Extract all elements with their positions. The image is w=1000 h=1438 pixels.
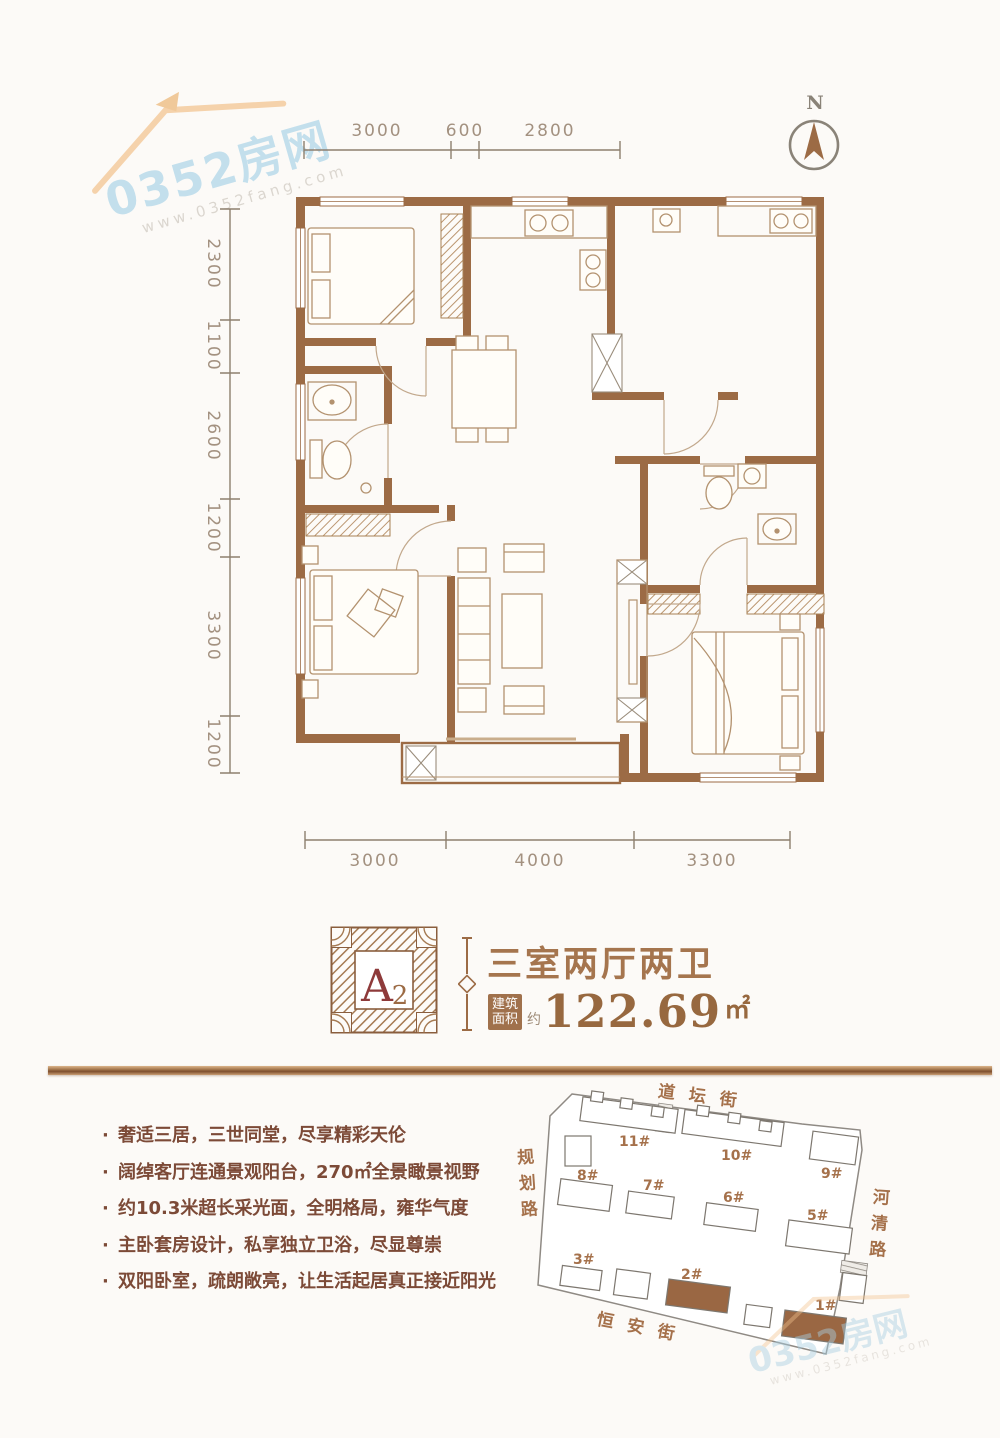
site-plan: 11# 10# 9# 8# 7# 6# 5# 3# 2# 1# xyxy=(515,1076,895,1368)
area-label-line1: 建筑 xyxy=(492,997,518,1012)
unit-badge: A 2 xyxy=(330,926,438,1034)
area-label-line2: 面积 xyxy=(492,1012,518,1027)
master-bath-fixtures xyxy=(704,464,796,544)
dimension-bottom: 3000 4000 3300 xyxy=(300,826,800,876)
floor-plan-drawing xyxy=(280,188,825,802)
living-room-set xyxy=(458,544,544,714)
bedroom2-bed xyxy=(302,546,418,698)
selling-point: 双阳卧室，疏朗敞亮，让生活起居真正接近阳光 xyxy=(100,1264,520,1301)
svg-text:4000: 4000 xyxy=(514,851,565,871)
svg-text:3300: 3300 xyxy=(686,851,737,871)
svg-text:3300: 3300 xyxy=(203,610,223,661)
copper-divider xyxy=(48,1066,992,1075)
bedroom1-bed xyxy=(308,228,414,324)
svg-text:1100: 1100 xyxy=(203,320,223,371)
svg-text:2600: 2600 xyxy=(203,410,223,461)
dining-set xyxy=(452,336,516,442)
furniture xyxy=(302,206,816,770)
svg-text:2300: 2300 xyxy=(203,238,223,289)
svg-text:8#: 8# xyxy=(577,1168,598,1184)
selling-point: 奢适三居，三世同堂，尽享精彩天伦 xyxy=(100,1118,520,1155)
svg-text:9#: 9# xyxy=(821,1166,842,1182)
selling-point: 约10.3米超长采光面，全明格局，雍华气度 xyxy=(100,1191,520,1228)
selling-point: 主卧套房设计，私享独立卫浴，尽显尊崇 xyxy=(100,1228,520,1265)
unit-title: 三室两厅两卫 xyxy=(487,936,715,987)
north-label: N xyxy=(780,92,850,114)
svg-text:3000: 3000 xyxy=(349,851,400,871)
svg-text:5#: 5# xyxy=(807,1208,828,1224)
badge-number: 2 xyxy=(392,981,409,1011)
svg-text:10#: 10# xyxy=(721,1148,752,1164)
dimension-top: 3000 600 2800 xyxy=(298,118,628,162)
selling-points-list: 奢适三居，三世同堂，尽享精彩天伦 阔绰客厅连通景观阳台，270㎡全景瞰景视野 约… xyxy=(100,1118,520,1301)
svg-text:7#: 7# xyxy=(643,1178,664,1194)
north-compass: N xyxy=(780,92,850,182)
area-label-chip: 建筑 面积 xyxy=(488,994,522,1030)
kitchen-fixtures xyxy=(471,206,607,290)
svg-text:1#: 1# xyxy=(815,1298,836,1314)
dimension-left: 2300 1100 2600 1200 3300 1200 xyxy=(192,203,242,783)
area-unit: ㎡ xyxy=(724,989,750,1026)
area-approx: 约 xyxy=(527,1009,541,1029)
svg-text:3#: 3# xyxy=(573,1252,594,1268)
title-connector xyxy=(458,936,476,1032)
bathroom1-fixtures xyxy=(308,382,371,493)
svg-text:11#: 11# xyxy=(619,1134,650,1150)
svg-text:2#: 2# xyxy=(681,1267,702,1283)
compass-icon xyxy=(780,114,850,178)
master-bed xyxy=(692,614,804,770)
selling-point: 阔绰客厅连通景观阳台，270㎡全景瞰景视野 xyxy=(100,1155,520,1192)
badge-letter: A xyxy=(360,961,394,1012)
svg-text:1200: 1200 xyxy=(203,718,223,769)
svg-text:6#: 6# xyxy=(723,1190,744,1206)
utility-counter xyxy=(653,206,816,236)
svg-text:2800: 2800 xyxy=(524,121,575,141)
svg-text:1200: 1200 xyxy=(203,502,223,553)
area-value: 122.69 xyxy=(543,985,721,1038)
svg-text:3000: 3000 xyxy=(351,121,402,141)
poster-page: { "watermark": { "brand": "0352房网", "url… xyxy=(0,0,1000,1438)
svg-text:600: 600 xyxy=(446,121,484,141)
area-row: 建筑 面积 约 122.69 ㎡ xyxy=(488,985,750,1038)
